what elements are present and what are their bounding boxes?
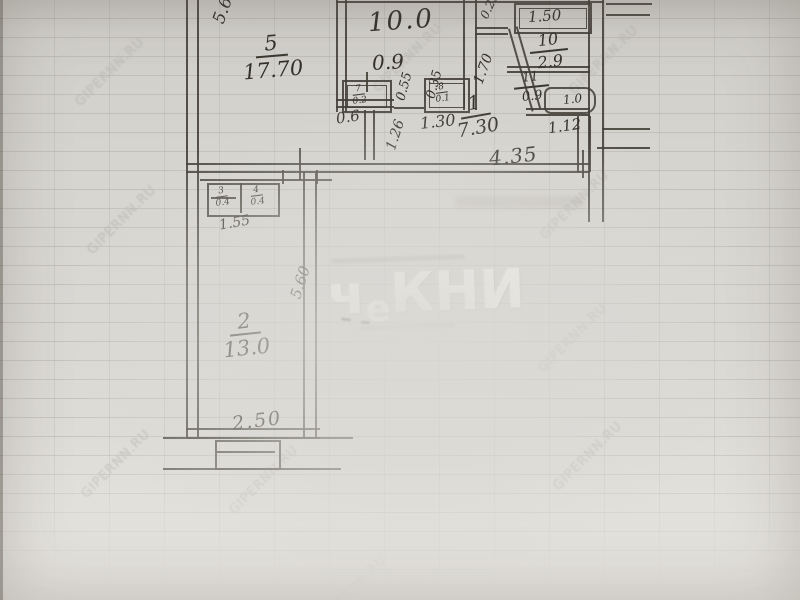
photo-edge <box>0 0 3 600</box>
paper-wash <box>0 0 800 600</box>
floorplan-photo: GIPERNN.RU GIPERNN.RU GIPERNN.RU GIPERNN… <box>0 0 800 600</box>
